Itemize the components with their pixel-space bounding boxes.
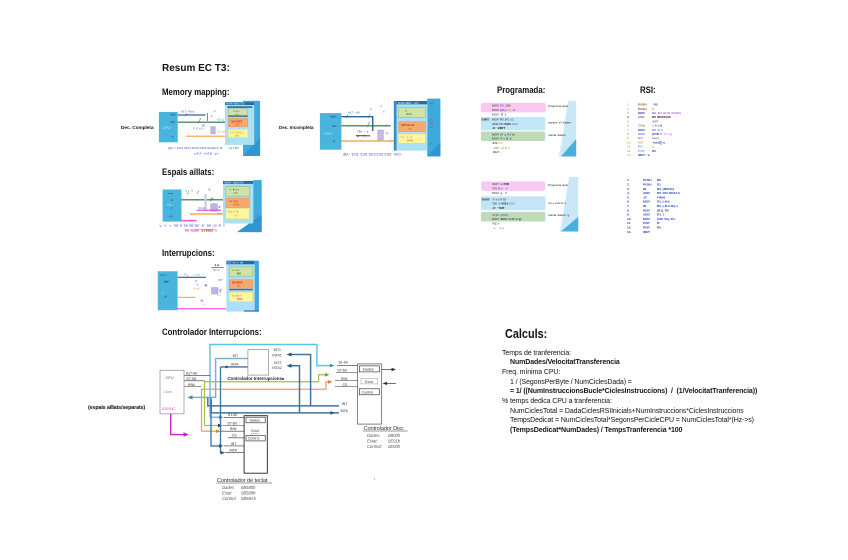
svg-text:H: H <box>205 284 208 288</box>
svg-text:’mxx[] ·u: ’mxx[] ·u <box>652 139 665 144</box>
svg-text:Estat: Estat <box>251 429 259 433</box>
svg-text:m ém: m ém <box>233 109 239 113</box>
svg-text:E/S: E/S <box>217 212 222 216</box>
svg-text:I/O· ’A’ g’e’: I/O· ’A’ g’e’ <box>401 135 414 139</box>
svg-text:tractar dades: tractar dades <box>548 133 566 137</box>
svg-text:Dades: Dades <box>363 368 374 372</box>
svg-text:,’e: ,’e <box>213 109 216 113</box>
svg-text:CPU: CPU <box>163 126 171 130</box>
svg-text:A17- A0 d: A17- A0 d <box>181 110 195 114</box>
svg-text:R/W: R/W <box>230 427 237 431</box>
svg-text:’g’: ’g’ <box>219 289 223 293</box>
svg-text:MOV ·R’ 2: MOV ·R’ 2 <box>492 112 507 116</box>
svg-text:0B580h: 0B580h <box>241 485 256 490</box>
svg-text:Control: Control <box>248 437 260 441</box>
svg-text:’e·’es’e: ’e·’es’e <box>232 268 241 272</box>
svg-text:MOV ’g · 2: MOV ’g · 2 <box>492 191 507 195</box>
svg-text:R0: R0 <box>652 149 656 153</box>
svg-text:’s: ’s <box>197 283 200 287</box>
svg-text:Control: Control <box>222 496 237 501</box>
svg-text:JZ’ ’ ’MIT: JZ’ ’ ’MIT <box>492 206 505 210</box>
svg-text:A17-A0: A17-A0 <box>186 372 197 376</box>
svg-text:’s · · e: ’s · · e <box>185 189 193 193</box>
svg-text:’B: ’B <box>208 188 211 192</box>
svg-text:R/W: R/W <box>188 383 195 387</box>
svg-text:D7-D0: D7-D0 <box>228 421 238 425</box>
svg-text:13.: 13. <box>627 230 631 234</box>
svg-text:@A = 1011 0101 1010 0101 0110b: @A = 1011 0101 1010 0101 0110b A, B · · … <box>168 146 239 150</box>
svg-text:Control: Control <box>362 391 374 395</box>
svg-text:INTA2: INTA2 <box>272 366 281 370</box>
svg-text:g’: g’ <box>184 272 187 276</box>
svg-text:g: g <box>385 123 387 127</box>
svg-text:AND: AND <box>638 115 645 119</box>
svg-text:IRET: IRET <box>643 230 650 234</box>
svg-text:▪’N: ▪’N <box>169 215 173 219</box>
svg-text:D0A: D0A <box>237 297 243 301</box>
svg-text:INTA1: INTA1 <box>272 353 281 357</box>
svg-text:ram: ram <box>235 113 239 116</box>
svg-text:·RET···: ·RET··· <box>492 150 502 154</box>
svg-text:’w’: ’w’ <box>164 295 168 299</box>
svg-text:13: 13 <box>627 153 631 157</box>
svg-text:MAPA MEM. · E/S: MAPA MEM. · E/S <box>398 102 419 105</box>
svg-text:a B A · b M B · g • ’: a B A · b M B · g • ’ <box>194 152 220 156</box>
svg-text:·a’e’: ·a’e’ <box>233 213 238 217</box>
svg-text:D7-D0: D7-D0 <box>338 369 348 373</box>
svg-text:’EMIT:: ’EMIT: <box>481 197 490 201</box>
svg-text:▪’e·’s: ▪’e·’s <box>161 273 168 277</box>
svg-text:·g’: ·g’ <box>430 142 433 145</box>
svg-text:CPU: CPU <box>166 375 174 380</box>
svg-text:MOV ’bd’e·’u’d’,’e’g’: MOV ’bd’e·’u’d’,’e’g’ <box>492 217 522 221</box>
svg-text:EMIT:: EMIT: <box>482 118 490 122</box>
svg-text:S1-S0: S1-S0 <box>339 361 348 365</box>
svg-text:espera: e’l dades: espera: e’l dades <box>548 121 571 125</box>
svg-text:’a’e’B: ’a’e’B <box>233 203 240 207</box>
svg-text:I-Gen: I-Gen <box>164 390 173 394</box>
svg-text:’e’B: ’e’B <box>233 191 238 195</box>
svg-text:’m ’▼’g’e: ’m ’▼’g’e <box>229 188 240 192</box>
svg-text:’B·g ’e·’B’: ’B·g ’e·’B’ <box>228 210 240 214</box>
svg-text:’e’c: ’e’c <box>217 293 222 297</box>
svg-text:Sw’: Sw’ <box>164 280 169 284</box>
svg-text:INT1: INT1 <box>274 348 281 352</box>
svg-text:’e·g’e: ’e·g’e <box>193 287 200 291</box>
svg-text:88: 88 <box>202 124 205 128</box>
svg-text:INTA: INTA <box>231 363 239 367</box>
svg-text:CPU: CPU <box>324 132 332 136</box>
svg-text:INT: INT <box>233 354 238 358</box>
svg-text:’AE ’E2B8’ ’E7B9E5 ’s·: ’AE ’E2B8’ ’E7B9E5 ’s· <box>184 229 218 233</box>
svg-text:’g · ’e · ’s · ’BE·’B·’EB’·BB·: ’g · ’e · ’s · ’BE·’B·’EB’·BB·’BE’··B’· … <box>159 224 225 228</box>
svg-text:Valid: Valid <box>170 113 176 117</box>
svg-text:JZ ’ EMIT: JZ ’ EMIT <box>492 126 505 130</box>
svg-text:IRET ·’e: IRET ·’e <box>638 153 650 157</box>
svg-text:Control:: Control: <box>367 444 382 449</box>
svg-text:INTA: INTA <box>341 409 349 413</box>
svg-text:· ’s: · ’s <box>378 104 382 108</box>
svg-text:MEM: MEM <box>406 112 412 116</box>
svg-text:1 w: 1 w <box>215 263 221 267</box>
svg-text:’C: ’C <box>170 207 173 211</box>
svg-text:IO·DRA: IO·DRA <box>232 281 243 285</box>
svg-text:Tec·b: Tec·b <box>213 268 220 272</box>
svg-text:dad: dad <box>235 135 240 138</box>
svg-text:Dat: Dat <box>171 120 176 124</box>
svg-text:tractar dades’ ’g: tractar dades’ ’g <box>548 213 570 217</box>
svg-text:’MB: ’MB <box>236 271 241 275</box>
svg-text:INT’: INT’ <box>218 278 223 282</box>
svg-text:0E00h: 0E00h <box>388 444 401 449</box>
svg-text:8: 8 <box>200 117 202 121</box>
svg-text:IOSYNC: IOSYNC <box>162 407 176 411</box>
svg-text:Estat:: Estat: <box>367 438 378 443</box>
svg-text:· g ’·: · g ’· <box>404 109 409 113</box>
svg-text:’OV B’u’ · s’: ’OV B’u’ · s’ <box>492 186 508 190</box>
svg-text:@A · ’1011 ·0101 1010 0101 011: @A · ’1011 ·0101 1010 0101 0110’ ·0101’ <box>343 153 402 157</box>
svg-text:8: 8 <box>369 121 371 125</box>
svg-text:Dades: Dades <box>222 485 235 490</box>
svg-text:Estat: Estat <box>365 380 373 384</box>
svg-text:MAPA MEM. E/S: MAPA MEM. E/S <box>226 103 245 106</box>
svg-text:INT·Ve·’s ·’ble: INT·Ve·’s ·’ble <box>228 262 244 265</box>
svg-text:p’: p’ <box>370 107 373 111</box>
svg-text:Dades:: Dades: <box>367 433 380 438</box>
svg-text:Addr.: Addr. <box>330 115 337 119</box>
svg-text:CS: CS <box>232 434 237 438</box>
svg-text:INTA: INTA <box>230 449 238 453</box>
svg-text:INT: INT <box>342 402 347 406</box>
svg-text:g’: g’ <box>219 205 222 209</box>
svg-text:0B588h: 0B588h <box>241 491 256 496</box>
svg-text:MAPA · MEM·RIA: MAPA · MEM·RIA <box>225 182 244 185</box>
svg-text:a’: a’ <box>171 198 174 202</box>
svg-text:0B00h: 0B00h <box>388 433 401 438</box>
svg-text:R0: R0 <box>657 226 661 230</box>
svg-text:0B58Ah: 0B58Ah <box>241 496 257 501</box>
svg-text:INT: INT <box>231 442 236 446</box>
svg-text:S1-S0: S1-S0 <box>228 413 237 417</box>
svg-text:MOV [R1] R0 · b: MOV [R1] R0 · b <box>492 108 515 112</box>
svg-text:Controlador Interrupcions■: Controlador Interrupcions■ <box>228 376 285 381</box>
svg-text:’es ’g’e: ’es ’g’e <box>229 199 239 203</box>
svg-text:P’: P’ <box>386 132 389 136</box>
svg-text:’w: ’w <box>202 303 206 307</box>
svg-text:R/W: R/W <box>341 377 348 381</box>
svg-text:E/S g: E/S g <box>217 118 225 122</box>
svg-text:Programa ppal.: Programa ppal. <box>548 183 569 187</box>
svg-text:JNZ R2 ’: JNZ R2 ’ <box>492 141 504 145</box>
svg-text:D7-D0: D7-D0 <box>187 377 197 381</box>
svg-text:INT2: INT2 <box>274 361 281 365</box>
svg-text:▪ ▪▪▪: ▪ ▪▪▪ <box>168 192 173 196</box>
svg-text:est: est <box>236 124 240 127</box>
svg-text:0E01h: 0E01h <box>388 438 401 443</box>
svg-text:DAD.: DAD. <box>407 139 414 143</box>
svg-text:·’s· · ’e·a: ·’s· · ’e·a <box>492 226 504 230</box>
svg-text:·g: ·g <box>382 109 385 113</box>
svg-text:Estat: Estat <box>222 491 232 496</box>
svg-text:’c’s: ’c’s <box>388 139 393 143</box>
svg-text:Dades: Dades <box>250 419 261 423</box>
svg-text:Dat: Dat <box>332 124 337 128</box>
svg-text:A17 - A0: A17 - A0 <box>348 111 360 115</box>
svg-text:Programa ppal.: Programa ppal. <box>548 104 569 108</box>
svg-text:· g’: · g’ <box>209 114 213 118</box>
svg-text:’es e ed’c’a ’e: ’es e ed’c’a ’e <box>548 201 567 205</box>
svg-text:CS sel: CS sel <box>217 130 226 134</box>
svg-text:EST./Lect: EST./Lect <box>402 123 415 127</box>
svg-text:’c·c’g·: ’c·c’g· <box>193 273 201 277</box>
svg-text:·JMP ’02 B’g’: ·JMP ’02 B’g’ <box>492 146 510 150</box>
svg-text:MOV R’u’ B ’d: MOV R’u’ B ’d <box>492 137 512 141</box>
svg-text:’IO rd: ’IO rd <box>198 206 205 210</box>
